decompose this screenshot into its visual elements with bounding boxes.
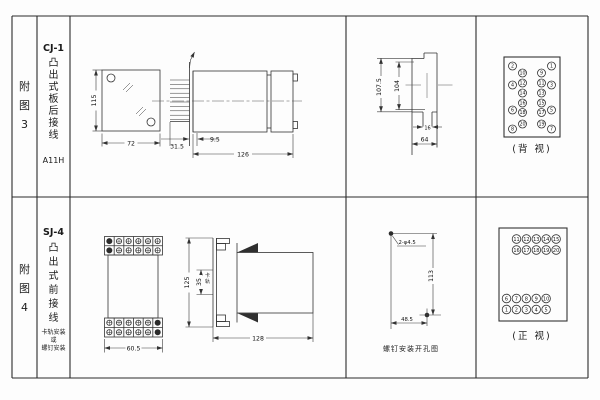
cj1-back-view-terminals: 2468101214161820911131517191357 xyxy=(509,62,556,133)
cj1-front-view-drawing: 115 72 xyxy=(90,70,160,147)
terminal-number: 6 xyxy=(505,296,508,302)
cj1-back-view-drawing: 2468101214161820911131517191357 xyxy=(504,57,560,137)
terminal-number: 11 xyxy=(538,81,544,87)
sj4-front-terminal-circles: 1112131415161718192067891012345 xyxy=(502,235,560,314)
drawing-sheet: 115 72 31.5 9.5 126 xyxy=(0,0,600,400)
mount-note-line2: 或 xyxy=(37,337,70,345)
drill-hole-top xyxy=(389,231,394,236)
terminal-number: 4 xyxy=(535,307,538,313)
terminal-number: 9 xyxy=(535,296,538,302)
dim-60-5: 60.5 xyxy=(127,345,141,352)
terminal-number: 12 xyxy=(523,237,529,243)
dim-128: 128 xyxy=(252,335,264,342)
terminal-number: 3 xyxy=(550,83,553,89)
sj4-front-view-drawing: 60.5 xyxy=(105,237,163,353)
hole-label: 2-φ4.5 xyxy=(399,240,416,246)
terminal-number: 9 xyxy=(540,71,543,77)
dim-107-5: 107.5 xyxy=(376,78,383,96)
sj4-front-terminal-view-drawing: 1112131415161718192067891012345 xyxy=(499,228,567,321)
back-view-caption: (背 视) xyxy=(476,141,588,155)
terminal-number: 7 xyxy=(550,127,553,133)
model-cj1: CJ-1 xyxy=(37,43,70,54)
cj1-panel-cutout-drawing: 107.5 104 16 64 xyxy=(375,53,453,155)
terminal-number: 12 xyxy=(519,81,525,87)
sj4-drill-diagram: 2-φ4.5 113 48.5 xyxy=(389,231,441,329)
code-a11h: A11H xyxy=(37,156,70,165)
terminal-number: 1 xyxy=(505,307,508,313)
dim-64: 64 xyxy=(421,137,429,144)
type-label-cj1: 凸出式板后接线 xyxy=(37,58,70,142)
dim-35: 35 xyxy=(196,278,203,286)
terminal-number: 19 xyxy=(543,248,549,254)
front-view-caption: (正 视) xyxy=(476,328,588,342)
terminal-number: 15 xyxy=(553,237,559,243)
terminal-number: 4 xyxy=(511,83,514,89)
terminal-number: 20 xyxy=(519,122,525,128)
dim-72: 72 xyxy=(127,140,135,147)
terminal-number: 8 xyxy=(511,127,514,133)
dim-9-5: 9.5 xyxy=(210,136,220,143)
model-sj4: SJ-4 xyxy=(37,227,70,238)
terminal-number: 1 xyxy=(550,64,553,70)
terminal-number: 10 xyxy=(543,296,549,302)
screw-filled xyxy=(155,329,161,335)
sj4-top-terminal-block xyxy=(105,237,163,256)
terminal-number: 13 xyxy=(538,91,544,97)
dim-16: 16 xyxy=(424,125,430,131)
terminal-number: 16 xyxy=(513,248,519,254)
terminal-number: 8 xyxy=(525,296,528,302)
mount-note-line1: 卡轨安装 xyxy=(37,329,70,337)
terminal-number: 18 xyxy=(533,248,539,254)
terminal-number: 13 xyxy=(533,237,539,243)
screw-filled xyxy=(106,247,112,253)
terminal-number: 7 xyxy=(515,296,518,302)
terminal-number: 5 xyxy=(545,307,548,313)
terminal-number: 5 xyxy=(550,108,553,114)
table-grid xyxy=(12,16,588,378)
wedge-bottom xyxy=(238,313,259,322)
terminal-number: 2 xyxy=(511,64,514,70)
terminal-number: 14 xyxy=(519,91,525,97)
mount-note: 卡轨安装 或 螺钉安装 xyxy=(37,329,70,353)
terminal-number: 3 xyxy=(525,307,528,313)
terminal-number: 2 xyxy=(515,307,518,313)
screw-filled xyxy=(155,320,161,326)
terminal-number: 11 xyxy=(513,237,519,243)
terminal-number: 20 xyxy=(553,248,559,254)
dim-104: 104 xyxy=(394,80,401,92)
terminal-number: 15 xyxy=(538,101,544,107)
terminal-number: 17 xyxy=(538,110,544,116)
screw-filled xyxy=(106,238,112,244)
fig-label-3: 附图3 xyxy=(12,77,37,134)
terminal-comb xyxy=(170,80,190,120)
terminal-number: 14 xyxy=(543,237,549,243)
terminal-number: 19 xyxy=(538,122,544,128)
sj4-side-view-drawing: 125 35 128 xyxy=(183,238,313,342)
terminal-number: 10 xyxy=(519,71,525,77)
dim-126: 126 xyxy=(237,151,249,158)
dim-115: 115 xyxy=(91,95,98,107)
dim-31-5: 31.5 xyxy=(170,144,184,151)
wedge-top xyxy=(238,243,259,252)
dim-48-5: 48.5 xyxy=(401,317,413,323)
terminal-number: 6 xyxy=(511,108,514,114)
terminal-number: 16 xyxy=(519,101,525,107)
terminal-number: 18 xyxy=(519,110,525,116)
type-label-sj4: 凸出式前接线 xyxy=(37,242,70,326)
terminal-number: 17 xyxy=(523,248,529,254)
drill-caption: 螺钉安装开孔图 xyxy=(346,344,476,354)
cj1-side-view-drawing: 31.5 9.5 126 xyxy=(152,52,302,158)
fig-label-4: 附图4 xyxy=(12,260,37,317)
mount-note-line3: 螺钉安装 xyxy=(37,345,70,353)
sj4-bottom-terminal-block xyxy=(105,318,163,337)
dim-113: 113 xyxy=(428,270,435,282)
rail-slot-label: 卡轨 xyxy=(205,274,212,285)
dim-125: 125 xyxy=(184,277,191,289)
